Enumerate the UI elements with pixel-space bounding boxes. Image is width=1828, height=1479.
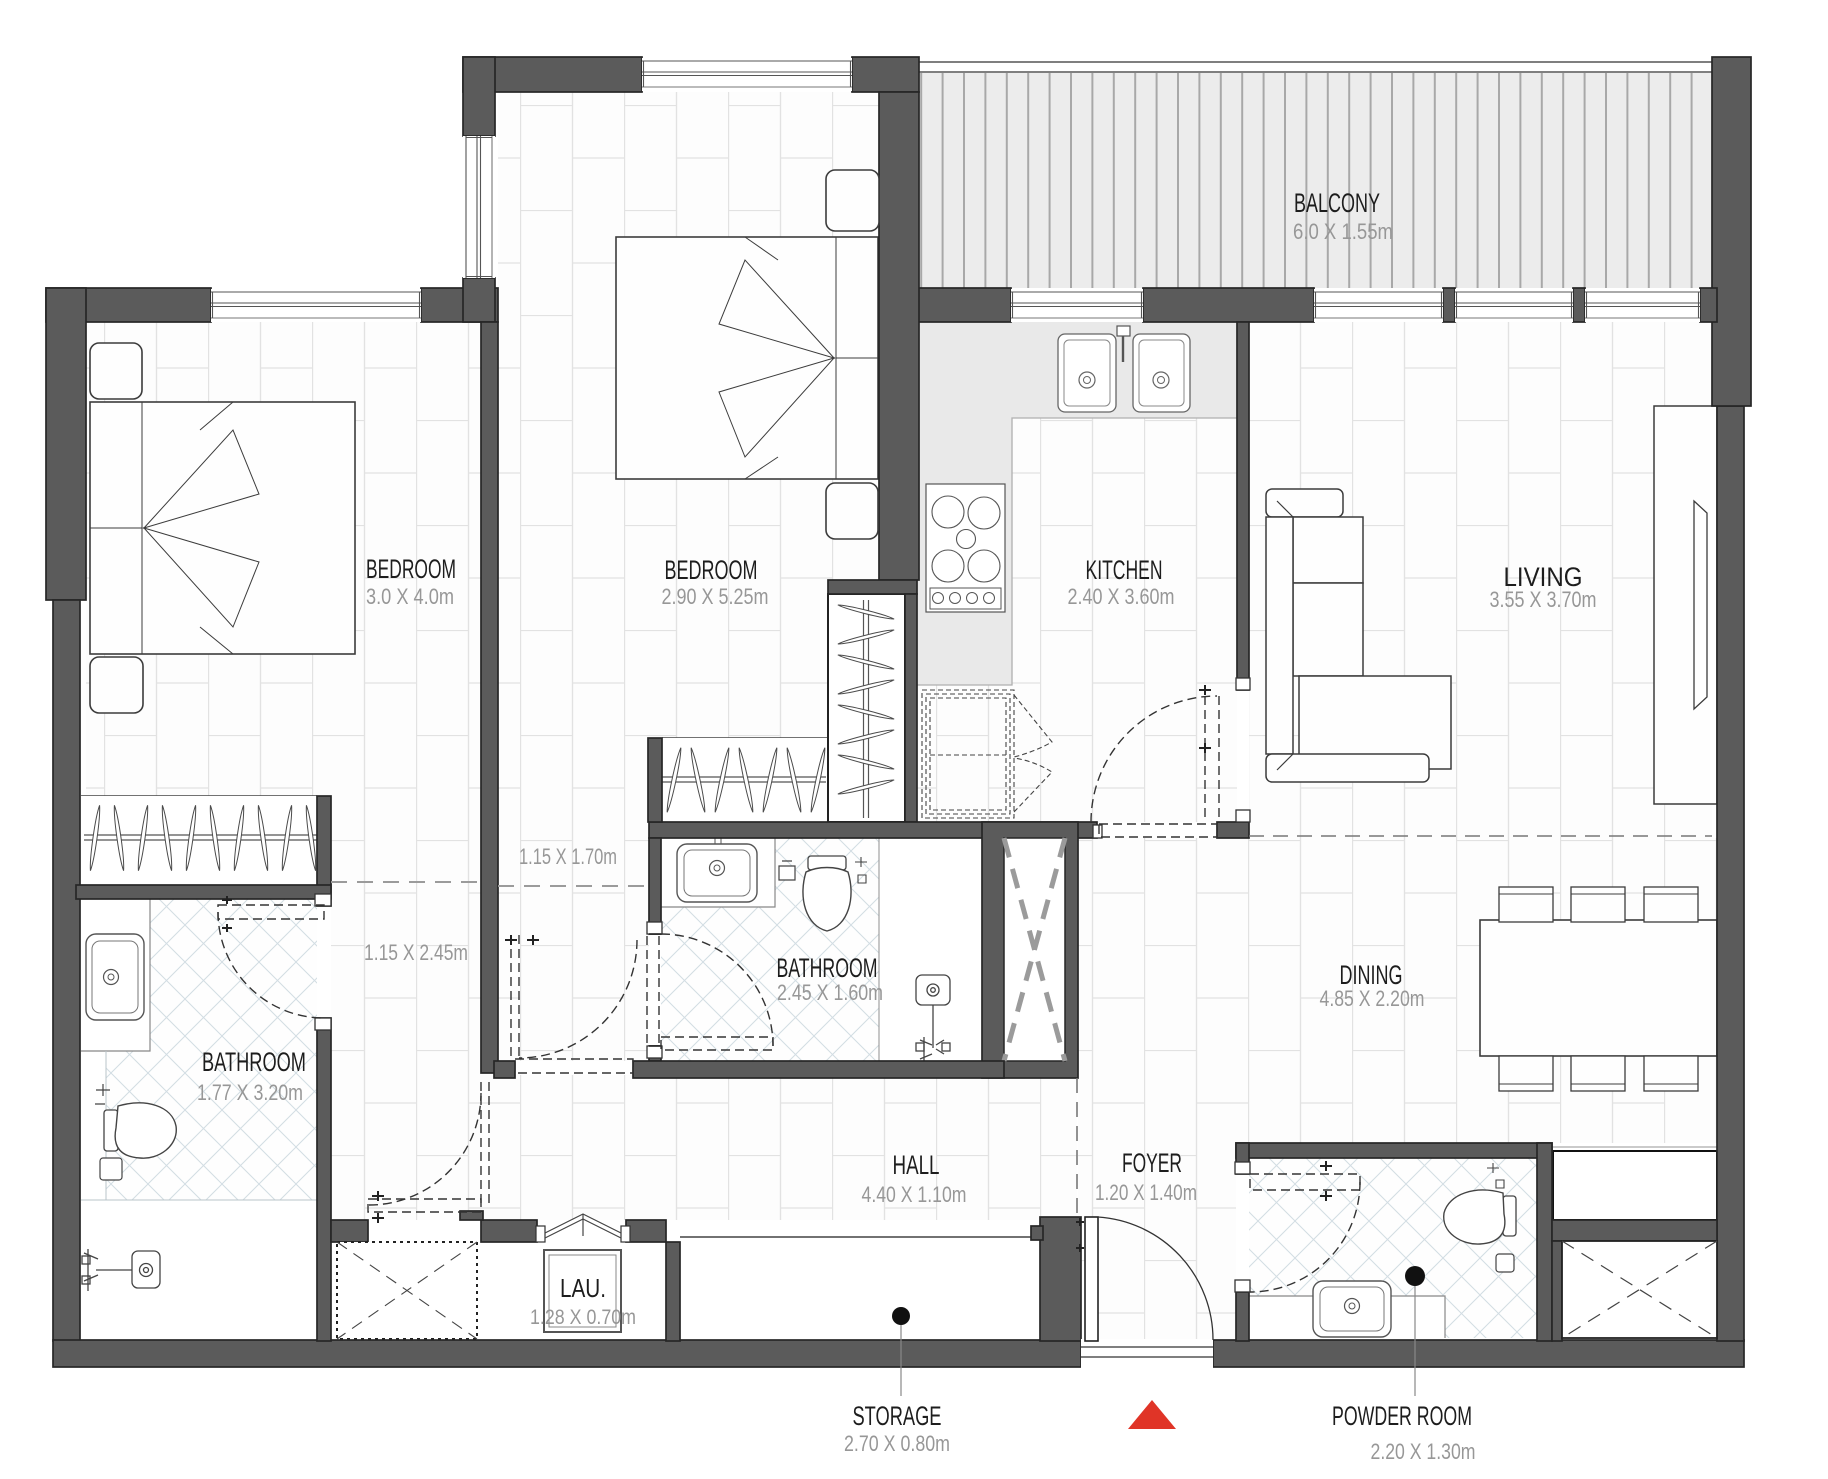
svg-text:BEDROOM: BEDROOM (665, 555, 758, 585)
svg-text:2.70 X 0.80m: 2.70 X 0.80m (844, 1431, 950, 1456)
svg-text:KITCHEN: KITCHEN (1086, 555, 1163, 585)
svg-text:BEDROOM: BEDROOM (366, 554, 456, 584)
svg-text:HALL: HALL (893, 1150, 940, 1180)
svg-text:1.20 X 1.40m: 1.20 X 1.40m (1095, 1180, 1197, 1205)
svg-text:1.77 X 3.20m: 1.77 X 3.20m (197, 1080, 303, 1105)
svg-text:3.0 X 4.0m: 3.0 X 4.0m (366, 584, 454, 609)
svg-text:1.28 X 0.70m: 1.28 X 0.70m (530, 1306, 636, 1329)
svg-text:2.20 X 1.30m: 2.20 X 1.30m (1371, 1439, 1476, 1464)
svg-text:FOYER: FOYER (1122, 1148, 1182, 1178)
svg-text:STORAGE: STORAGE (853, 1401, 942, 1431)
svg-text:3.55 X 3.70m: 3.55 X 3.70m (1490, 587, 1597, 612)
svg-text:2.40 X 3.60m: 2.40 X 3.60m (1068, 584, 1175, 609)
svg-text:BATHROOM: BATHROOM (202, 1047, 306, 1077)
svg-text:6.0 X 1.55m: 6.0 X 1.55m (1293, 219, 1393, 244)
svg-text:BALCONY: BALCONY (1294, 188, 1380, 218)
svg-text:4.40 X 1.10m: 4.40 X 1.10m (862, 1182, 967, 1207)
svg-text:BATHROOM: BATHROOM (777, 953, 878, 983)
svg-text:1.15 X 1.70m: 1.15 X 1.70m (519, 844, 617, 869)
svg-text:POWDER ROOM: POWDER ROOM (1332, 1401, 1472, 1431)
svg-text:1.15 X 2.45m: 1.15 X 2.45m (364, 940, 468, 965)
svg-text:2.45 X 1.60m: 2.45 X 1.60m (777, 980, 883, 1005)
svg-text:4.85 X 2.20m: 4.85 X 2.20m (1320, 986, 1425, 1011)
svg-text:LAU.: LAU. (560, 1273, 606, 1303)
svg-text:2.90 X 5.25m: 2.90 X 5.25m (662, 584, 769, 609)
